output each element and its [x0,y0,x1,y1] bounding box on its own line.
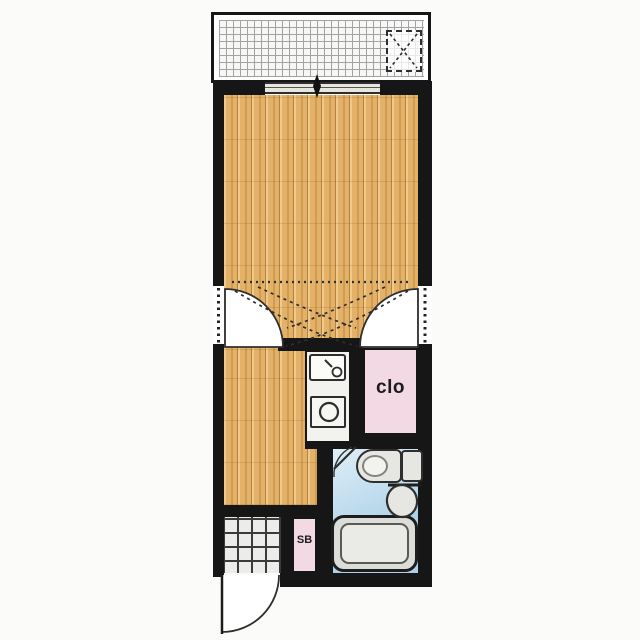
closet: clo [363,348,418,435]
wall-bottom [280,573,432,587]
toilet-tank [401,450,423,482]
kitchen-corridor-floor [224,350,317,505]
wall-entrance-step [213,505,333,517]
shoe-box-label: SB [297,534,312,546]
wall-right [418,81,432,587]
floorplan: clo SB [0,0,640,640]
main-room-floor [224,95,418,350]
wall-top-right [380,81,432,95]
bathtub-inner [340,523,409,564]
sliding-window [265,82,380,94]
stove-icon [310,396,346,428]
wall-kitchen-right [350,350,363,443]
wall-top-left [213,81,265,95]
washer-space-icon [386,30,422,72]
entrance-tile-floor [220,517,281,573]
kitchen-sink-icon [309,354,346,381]
wall-left [213,81,224,577]
closet-label: clo [376,377,405,399]
shoe-box: SB [292,517,317,573]
wall-entrance-right [281,517,292,573]
front-door-swing [222,575,279,634]
toilet-bowl-inner [362,455,388,477]
